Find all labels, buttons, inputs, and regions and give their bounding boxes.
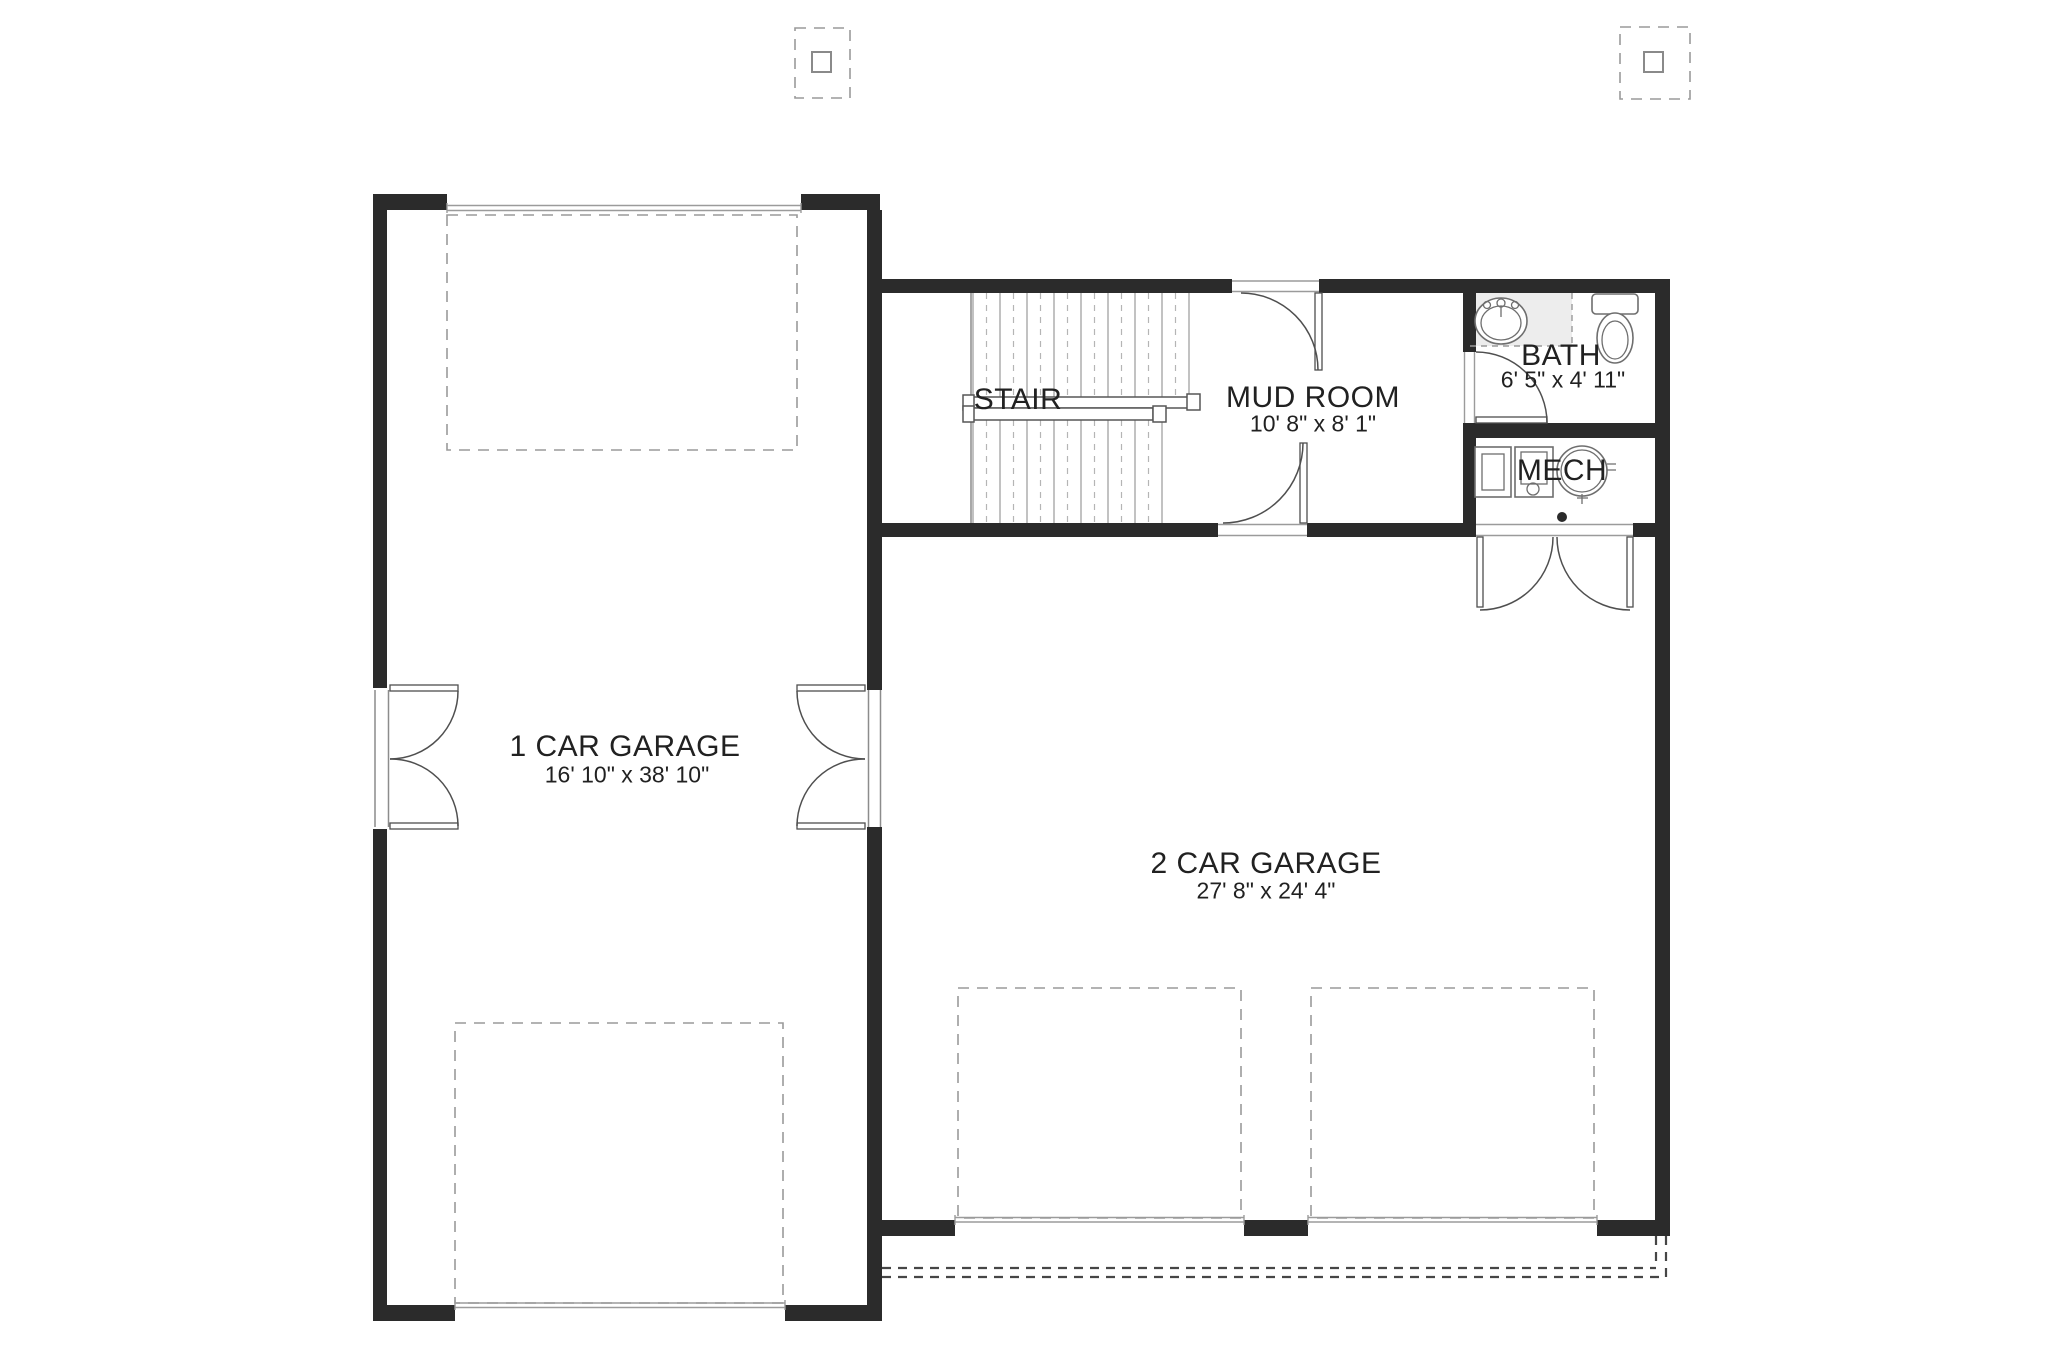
floor-plan-drawing bbox=[0, 0, 2048, 1365]
floor-plan-canvas: 1 CAR GARAGE 16' 10" x 38' 10" 2 CAR GAR… bbox=[0, 0, 2048, 1365]
stair-rail-upper-right-cap bbox=[1187, 394, 1200, 410]
bath-dims: 6' 5" x 4' 11" bbox=[1501, 367, 1625, 394]
two-car-garage-dims: 27' 8" x 24' 4" bbox=[1197, 878, 1336, 905]
wall-2car-south-right-block bbox=[1597, 1220, 1670, 1236]
wall-west-lower bbox=[373, 829, 387, 1305]
wall-north-left-block bbox=[373, 194, 447, 210]
stair-label: STAIR bbox=[974, 383, 1063, 417]
one-car-north-overhead-door bbox=[447, 215, 797, 450]
wall-west-upper bbox=[373, 194, 387, 688]
two-car-overhead-door-right bbox=[1311, 988, 1594, 1218]
stair-lower-run-treads bbox=[973, 420, 1162, 523]
utility-box-icon bbox=[1475, 447, 1511, 497]
wall-2car-south-pier bbox=[1244, 1220, 1308, 1236]
wall-2car-south-left-block bbox=[867, 1220, 955, 1236]
wall-strip-north-left bbox=[872, 279, 1232, 293]
floor-drain-icon bbox=[1557, 512, 1567, 522]
post-marker-square bbox=[1644, 52, 1663, 72]
one-car-west-double-door bbox=[375, 685, 458, 829]
wall-mech-south-right bbox=[1633, 523, 1670, 537]
mud-room-dims: 10' 8" x 8' 1" bbox=[1250, 411, 1376, 438]
wall-strip-south-left bbox=[872, 523, 1218, 537]
mud-room-south-door bbox=[1218, 443, 1307, 536]
two-car-overhead-door-left bbox=[958, 988, 1241, 1218]
wall-outer-east bbox=[1655, 279, 1670, 1235]
wall-north-right-block bbox=[801, 194, 880, 210]
sink-icon bbox=[1475, 298, 1527, 344]
wall-mech-west bbox=[1463, 423, 1476, 537]
mud-room-north-door bbox=[1232, 281, 1322, 370]
one-car-garage-dims: 16' 10" x 38' 10" bbox=[545, 762, 710, 789]
one-car-south-overhead-door bbox=[455, 1023, 783, 1303]
stair-rail-lower-right-cap bbox=[1153, 406, 1166, 422]
post-marker-square bbox=[812, 52, 831, 72]
mech-label: MECH bbox=[1517, 454, 1607, 488]
wall-bath-west bbox=[1463, 293, 1476, 352]
driveway-apron bbox=[882, 1236, 1666, 1277]
column-post-marker-right bbox=[1620, 27, 1690, 99]
two-car-garage-label: 2 CAR GARAGE bbox=[1150, 847, 1381, 881]
column-post-marker-left bbox=[795, 28, 850, 98]
one-car-east-double-door bbox=[797, 685, 881, 829]
stair-rail-lower-left-cap bbox=[963, 406, 974, 422]
mech-double-doors bbox=[1476, 525, 1633, 611]
one-car-garage-label: 1 CAR GARAGE bbox=[509, 730, 740, 764]
wall-south-right-block bbox=[785, 1305, 882, 1321]
wall-south-left-block bbox=[373, 1305, 455, 1321]
wall-strip-south-mid bbox=[1307, 523, 1463, 537]
wall-bath-south bbox=[1463, 423, 1670, 438]
wall-strip-north-right bbox=[1319, 279, 1670, 293]
one-car-north-door-opening bbox=[447, 206, 801, 211]
